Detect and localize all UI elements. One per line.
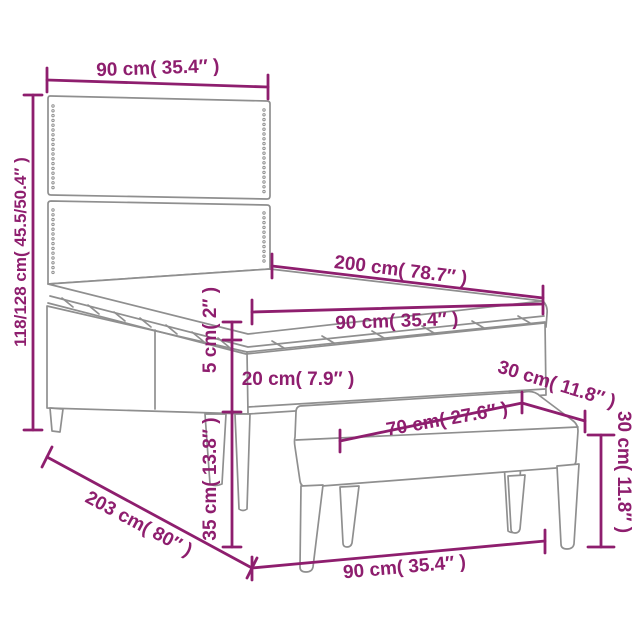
headboard-upper-panel xyxy=(48,96,270,199)
dim-mattress-height-label: 20 cm( 7.9″ ) xyxy=(242,369,355,390)
dim-frame-width-label: 90 cm( 35.4″ ) xyxy=(342,552,467,584)
diagram-canvas: 90 cm( 35.4″ ) 118/128 cm( 45.5/50.4″ ) … xyxy=(0,0,640,640)
dim-headboard-height-label: 118/128 cm( 45.5/50.4″ ) xyxy=(11,157,30,347)
dim-headboard-width-label: 90 cm( 35.4″ ) xyxy=(96,56,220,81)
bench-leg-front-right xyxy=(557,464,579,549)
bench-leg-front-left xyxy=(300,485,323,572)
bench-leg-back-right xyxy=(508,475,525,533)
dim-base-height-label: 35 cm( 13.8″ ) xyxy=(200,417,221,540)
bed-dimension-diagram: 90 cm( 35.4″ ) 118/128 cm( 45.5/50.4″ ) … xyxy=(0,0,640,640)
dim-frame-length-label: 203 cm( 80″ ) xyxy=(82,487,196,561)
bench-leg-back-left xyxy=(340,486,359,547)
bed-leg-corner xyxy=(235,414,250,511)
dim-headboard-width-line xyxy=(47,80,268,87)
dim-topper-height-label: 5 cm( 2″ ) xyxy=(200,287,221,373)
bed-leg-head xyxy=(50,408,63,432)
dim-mattress-width-label: 90 cm( 35.4″ ) xyxy=(335,309,459,334)
dim-bench-height-label: 30 cm( 11.8″ ) xyxy=(613,411,634,533)
